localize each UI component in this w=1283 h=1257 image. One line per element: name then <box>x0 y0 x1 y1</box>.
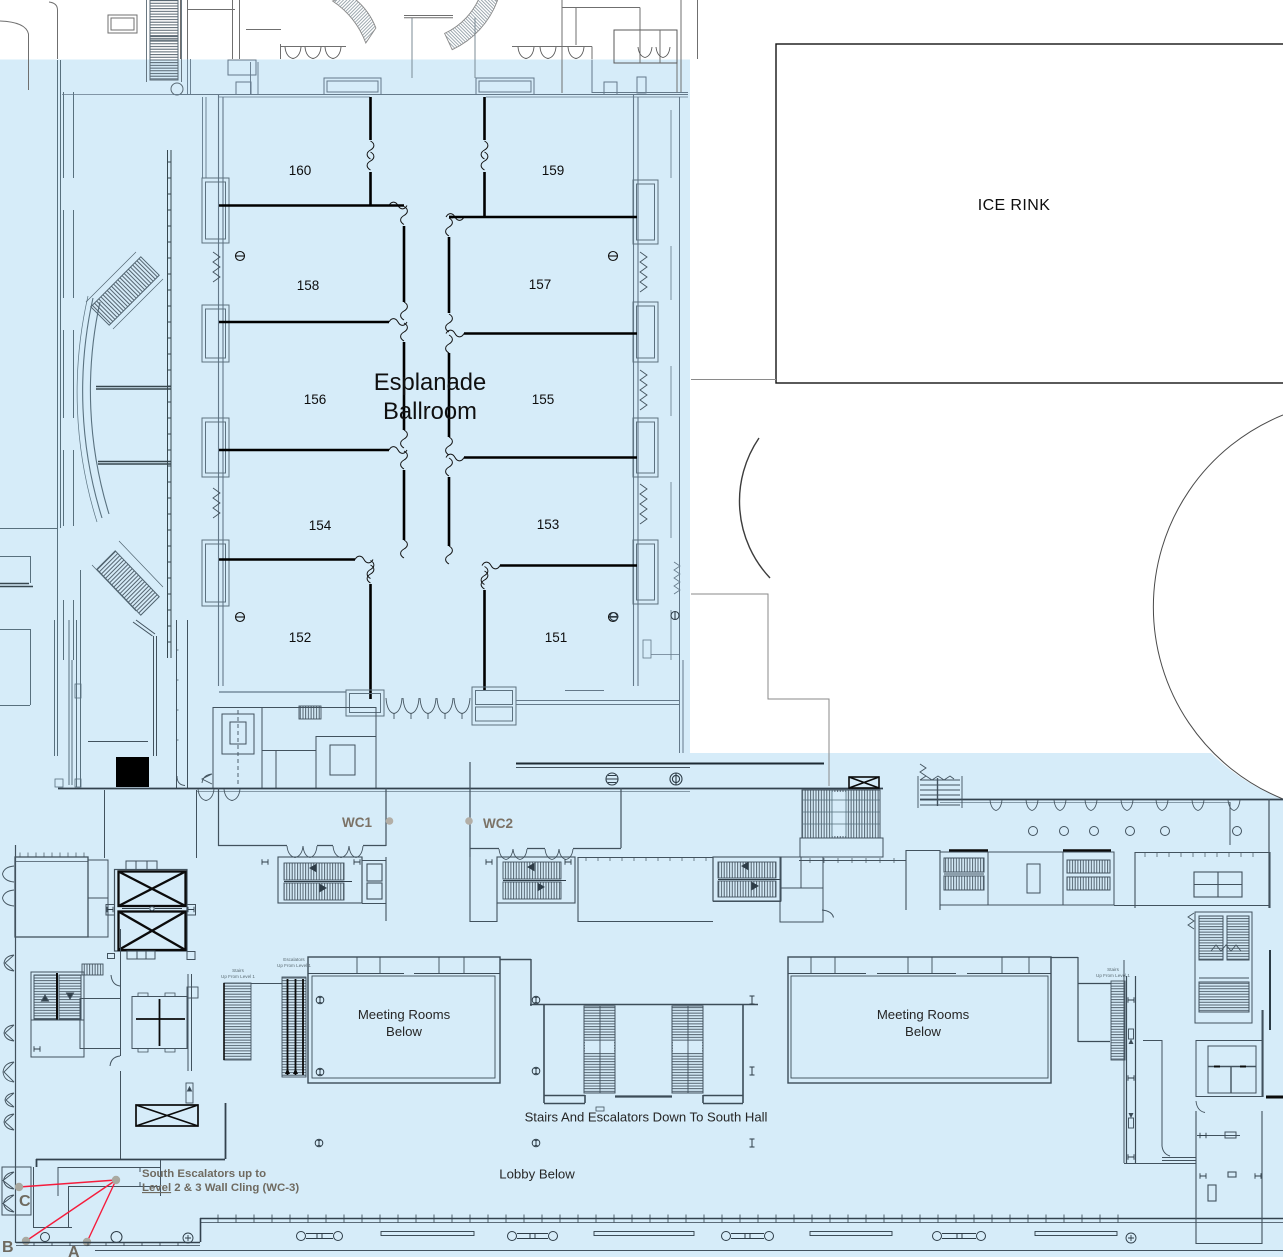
svg-text:Esplanade: Esplanade <box>374 369 486 396</box>
svg-text:Stairs And Escalators Down To: Stairs And Escalators Down To South Hall <box>525 1110 768 1125</box>
svg-text:Meeting Rooms: Meeting Rooms <box>877 1007 970 1022</box>
svg-text:Stairs: Stairs <box>232 968 244 973</box>
svg-text:ICE RINK: ICE RINK <box>978 197 1051 214</box>
svg-text:159: 159 <box>542 163 565 178</box>
svg-text:South Escalators up to: South Escalators up to <box>142 1168 266 1180</box>
svg-text:Ballroom: Ballroom <box>383 398 477 425</box>
svg-text:B: B <box>2 1239 14 1256</box>
svg-text:Stairs: Stairs <box>1107 967 1119 972</box>
svg-text:Meeting Rooms: Meeting Rooms <box>358 1007 451 1022</box>
svg-text:157: 157 <box>529 277 552 292</box>
svg-text:WC2: WC2 <box>483 816 513 831</box>
svg-text:160: 160 <box>289 163 312 178</box>
svg-text:Up From Level 1: Up From Level 1 <box>221 974 255 979</box>
svg-text:Escalators: Escalators <box>283 957 305 962</box>
svg-text:Below: Below <box>905 1024 941 1039</box>
svg-text:Lobby Below: Lobby Below <box>499 1167 575 1182</box>
svg-text:151: 151 <box>545 630 568 645</box>
svg-text:Below: Below <box>386 1024 422 1039</box>
svg-text:WC1: WC1 <box>342 815 372 830</box>
svg-text:155: 155 <box>532 392 555 407</box>
svg-text:158: 158 <box>297 278 320 293</box>
svg-text:156: 156 <box>304 392 327 407</box>
svg-text:Up From Level 1: Up From Level 1 <box>277 963 311 968</box>
svg-text:154: 154 <box>309 518 332 533</box>
svg-text:Level 2 & 3 Wall Cling (WC-3): Level 2 & 3 Wall Cling (WC-3) <box>142 1182 299 1194</box>
svg-text:153: 153 <box>537 517 560 532</box>
svg-text:Up From Level 1: Up From Level 1 <box>1096 973 1130 978</box>
svg-text:C: C <box>19 1193 31 1210</box>
svg-text:152: 152 <box>289 630 312 645</box>
